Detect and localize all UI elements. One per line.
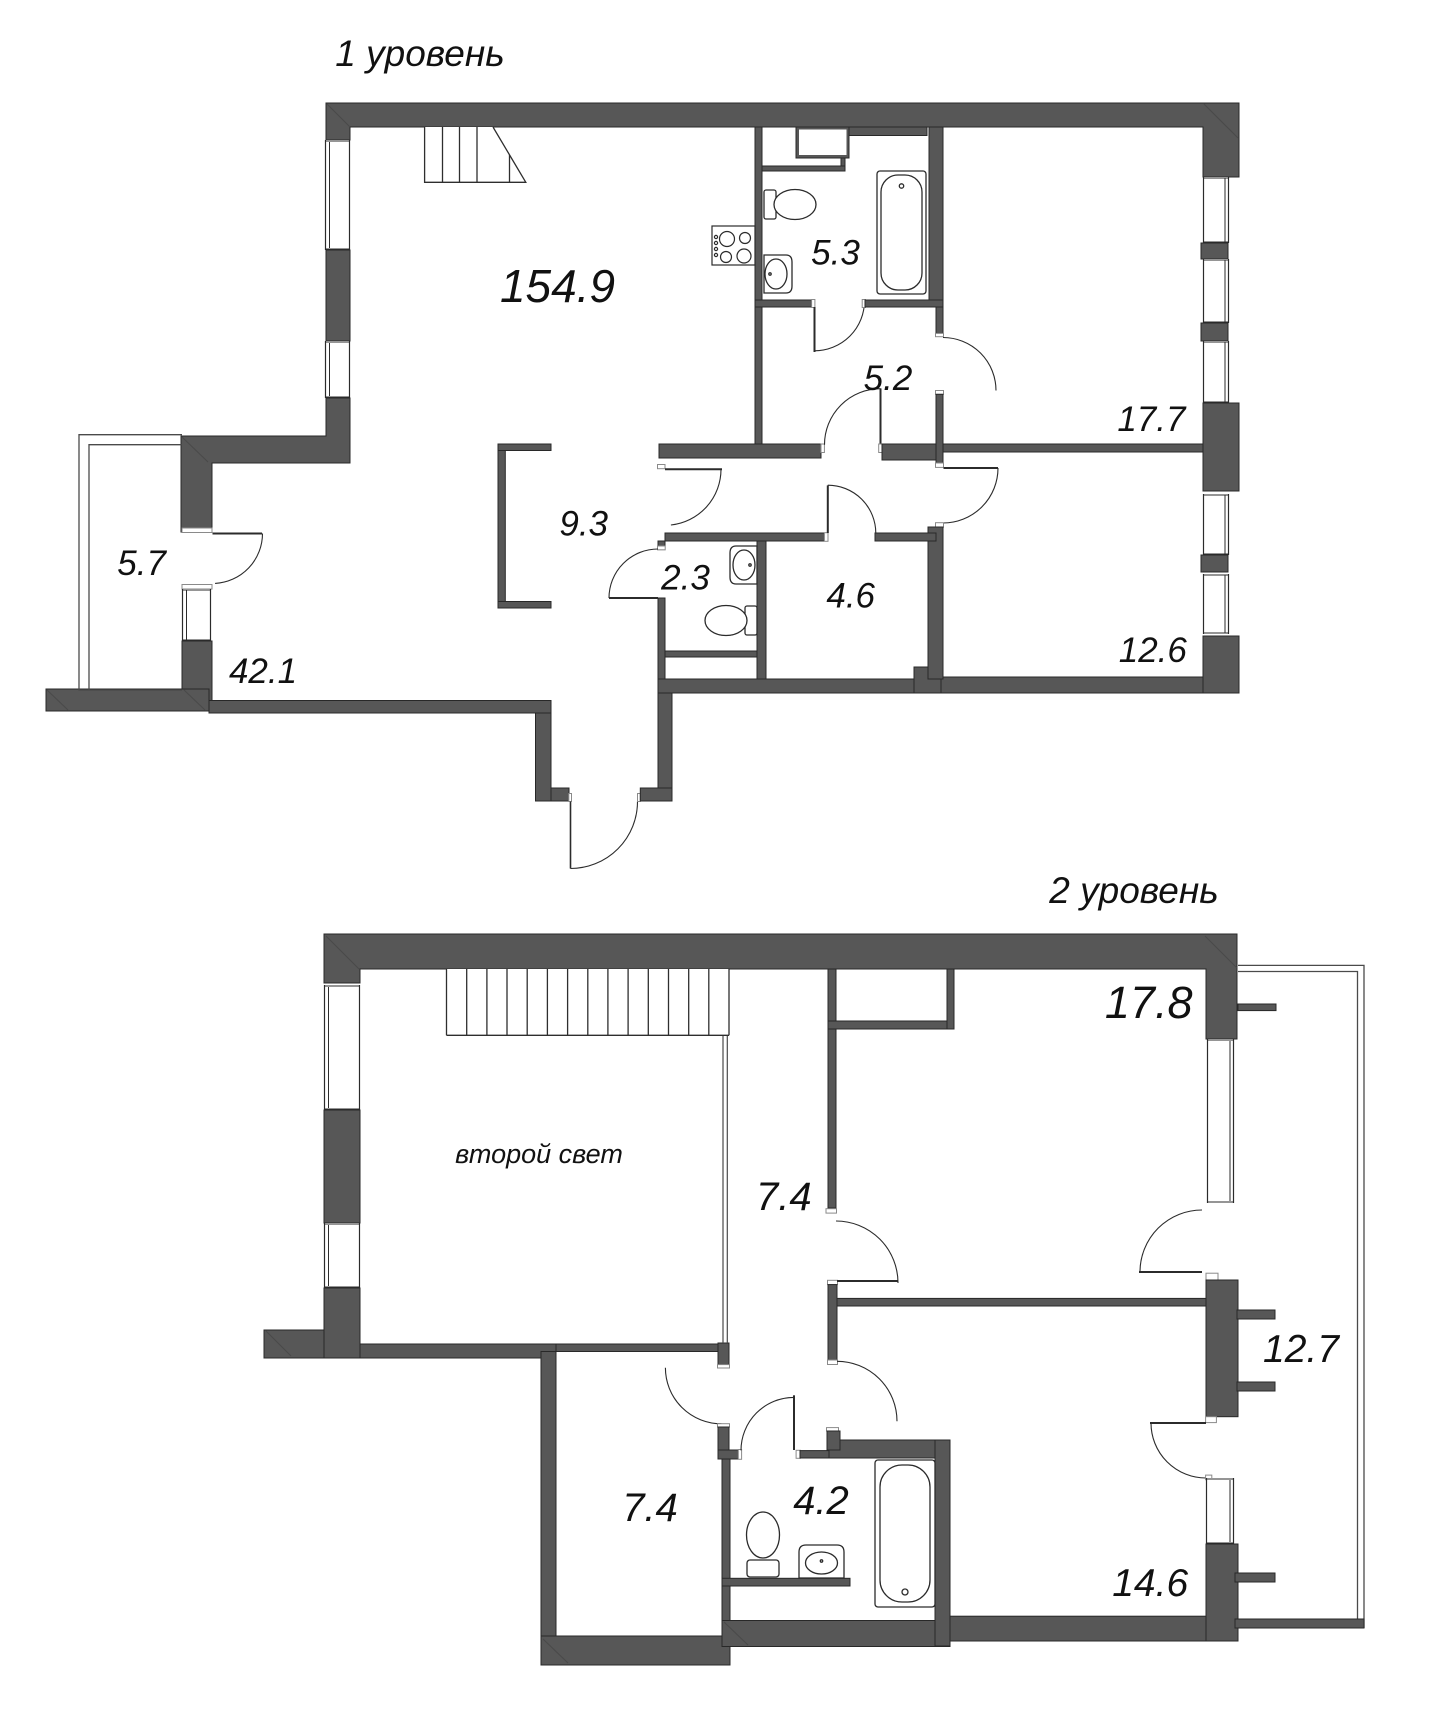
svg-text:14.6: 14.6 [1112, 1562, 1188, 1605]
svg-text:42.1: 42.1 [229, 652, 297, 691]
svg-text:4.2: 4.2 [793, 1479, 849, 1523]
svg-text:5.2: 5.2 [864, 359, 913, 398]
svg-text:7.4: 7.4 [756, 1175, 812, 1219]
svg-text:2 уровень: 2 уровень [1048, 870, 1218, 911]
svg-text:1 уровень: 1 уровень [335, 33, 504, 74]
svg-text:17.7: 17.7 [1117, 400, 1187, 439]
svg-text:5.3: 5.3 [811, 234, 860, 273]
svg-text:9.3: 9.3 [559, 505, 608, 544]
svg-text:12.6: 12.6 [1119, 631, 1188, 670]
svg-text:4.6: 4.6 [826, 577, 875, 616]
svg-text:второй свет: второй свет [455, 1139, 623, 1169]
svg-text:2.3: 2.3 [660, 559, 710, 598]
svg-text:17.8: 17.8 [1105, 977, 1193, 1028]
svg-text:5.7: 5.7 [117, 544, 167, 583]
svg-text:7.4: 7.4 [622, 1486, 678, 1530]
svg-text:12.7: 12.7 [1263, 1328, 1340, 1371]
svg-text:154.9: 154.9 [500, 260, 615, 312]
